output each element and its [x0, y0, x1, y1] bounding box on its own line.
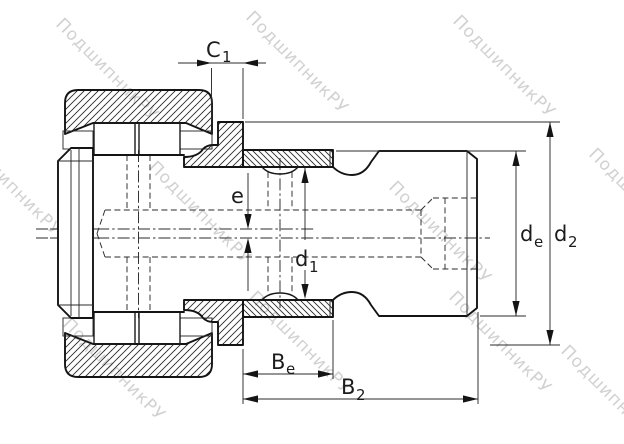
bearing-cross-section-drawing: ПодшипникРУ ПодшипникРУ ПодшипникРУ Подш… — [0, 0, 624, 444]
watermark: ПодшипникРУ — [384, 177, 495, 288]
dim-label-c1-sub: 1 — [222, 48, 232, 66]
dim-label-d1-sub: 1 — [309, 258, 319, 276]
dim-label-b2: B — [341, 375, 355, 399]
roller-bottom-right — [139, 312, 180, 344]
end-washer — [58, 148, 93, 318]
dim-label-e: e — [231, 184, 244, 208]
dim-label-de-sub: e — [534, 233, 543, 251]
watermark: ПодшипникРУ — [0, 129, 65, 240]
eccentric-bushing-bottom — [243, 300, 333, 317]
dim-label-b2-sub: 2 — [356, 386, 366, 404]
watermark: ПодшипникРУ — [444, 287, 555, 398]
dim-label-d2: d — [554, 222, 567, 246]
roller-top-left — [94, 123, 135, 155]
stud-collar-top — [184, 122, 243, 167]
technical-drawing-page: ПодшипникРУ ПодшипникРУ ПодшипникРУ Подш… — [0, 0, 624, 444]
hidden-lines — [58, 155, 476, 312]
parts — [58, 90, 477, 377]
eccentric-bushing-top — [243, 150, 333, 167]
watermark: ПодшипникРУ — [448, 11, 559, 122]
watermark: ПодшипникРУ — [144, 157, 255, 268]
dim-label-be-sub: e — [286, 360, 295, 378]
watermark: ПодшипникРУ — [556, 341, 624, 444]
dim-label-c1: C — [206, 38, 221, 62]
stud-collar-bottom — [184, 300, 243, 345]
dim-label-be: B — [271, 350, 285, 374]
roller-top-right — [139, 123, 180, 155]
dim-label-de: d — [520, 222, 533, 246]
dimension-d1: d 1 — [295, 168, 319, 299]
dim-label-d1: d — [295, 247, 308, 271]
watermark: ПодшипникРУ — [584, 144, 624, 255]
roller-bottom-left — [94, 312, 135, 344]
dim-label-d2-sub: 2 — [568, 233, 578, 251]
